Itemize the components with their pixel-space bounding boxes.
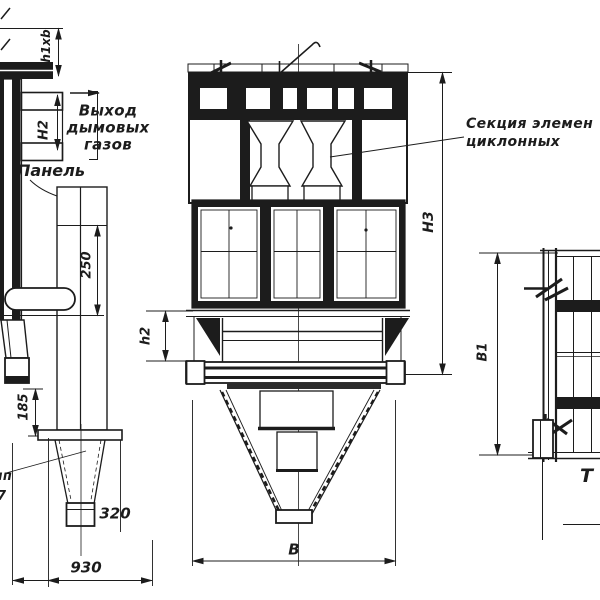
dim-label-H3: Н3 (421, 211, 437, 232)
dim-label-h2: h2 (140, 327, 155, 345)
drawing-sheet: h1xb Н2 Выход дымовых газов Панель 250 1… (0, 0, 600, 600)
drawing-canvas (0, 0, 600, 600)
front-view (146, 42, 464, 566)
gas-outlet-note: Выход дымовых газов (66, 103, 149, 154)
inlet-pipe-side (5, 288, 75, 310)
gas-outlet-line3: газов (66, 137, 149, 154)
dim-label-h1xb: h1xb (40, 29, 54, 62)
side-view-left (0, 8, 153, 587)
dim-label-h2-cap: Н2 (38, 120, 53, 140)
clipped-label-fragment-right: Т (580, 466, 593, 488)
clipped-label-fragment-bottom: 7 (0, 490, 6, 505)
cyclone-section-line1: Секция элемен (466, 115, 593, 133)
side-view-right (479, 248, 600, 540)
dim-label-B: В (288, 541, 299, 558)
dim-label-930: 930 (70, 559, 101, 576)
cyclone-section-box (189, 119, 407, 203)
cyclone-section-line2: циклонных (466, 133, 593, 151)
gas-outlet-line2: дымовых (66, 120, 149, 137)
dim-label-250: 250 (81, 251, 96, 278)
support-leg (533, 420, 553, 458)
gas-outlet-line1: Выход (66, 103, 149, 120)
clipped-label-fragment-top: чп (0, 470, 12, 485)
dim-label-320: 320 (99, 505, 130, 522)
dim-label-B1: В1 (477, 343, 492, 362)
support-beam (186, 362, 405, 383)
cyclone-section-note: Секция элемен циклонных (466, 115, 593, 151)
panel-label: Панель (17, 162, 85, 180)
hopper-outlet (276, 510, 312, 523)
dim-label-185: 185 (18, 393, 33, 420)
lifting-hook (279, 42, 320, 74)
